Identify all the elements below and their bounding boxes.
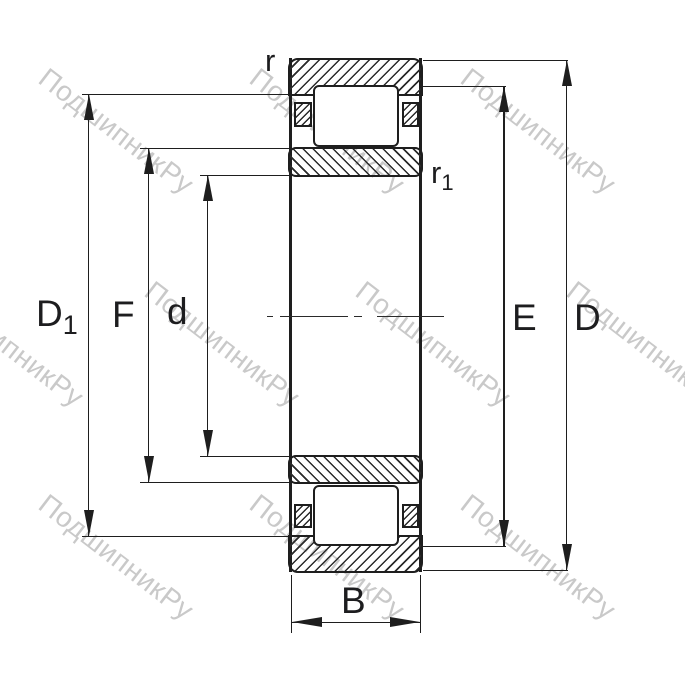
centerline-segment bbox=[354, 316, 362, 317]
label-D1-sub: 1 bbox=[63, 310, 78, 340]
extension-line-D-bottom bbox=[423, 570, 568, 571]
arrowhead-F-up bbox=[144, 148, 154, 174]
centerline-segment bbox=[377, 316, 444, 317]
extension-line-E-bottom bbox=[421, 546, 506, 547]
extension-line-E-top bbox=[421, 86, 506, 87]
label-r1-base: r bbox=[431, 155, 441, 190]
inner-ring-bottom-section bbox=[288, 455, 424, 484]
watermark: ПодшипникРу bbox=[139, 275, 306, 414]
watermark: ПодшипникРу bbox=[33, 62, 200, 201]
label-F-text: F bbox=[112, 294, 135, 335]
dimension-line-F bbox=[148, 148, 150, 482]
watermark: ПодшипникРу bbox=[350, 275, 517, 414]
bearing-drawing-canvas: ПодшипникРу ПодшипникРу ПодшипникРу Подш… bbox=[0, 0, 685, 689]
arrowhead-D1-up bbox=[84, 94, 94, 120]
extension-line-D1-top bbox=[82, 94, 289, 95]
label-B-text: B bbox=[341, 580, 366, 621]
label-r-text: r bbox=[265, 43, 275, 78]
centerline-segment bbox=[280, 316, 348, 317]
label-E: E bbox=[512, 299, 537, 336]
centerline-segment bbox=[267, 316, 273, 317]
label-D1-base: D bbox=[36, 293, 63, 334]
arrowhead-d-up bbox=[203, 175, 213, 201]
arrowhead-E-up bbox=[499, 86, 509, 112]
watermark: ПодшипникРу bbox=[455, 488, 622, 627]
extension-line-D-top bbox=[423, 60, 568, 61]
label-r1: r1 bbox=[431, 157, 454, 194]
extension-line-d-top bbox=[200, 175, 291, 176]
label-d: d bbox=[167, 293, 188, 330]
label-E-text: E bbox=[512, 297, 537, 338]
label-D-text: D bbox=[574, 297, 601, 338]
label-r1-sub: 1 bbox=[441, 170, 453, 195]
roller-top bbox=[313, 85, 399, 148]
watermark: ПодшипникРу bbox=[455, 62, 622, 201]
arrowhead-B-left bbox=[292, 617, 322, 627]
roller-bottom bbox=[313, 485, 399, 547]
extension-line-F-bottom bbox=[140, 482, 289, 483]
arrowhead-D-up bbox=[562, 60, 572, 86]
dimension-line-D1 bbox=[88, 94, 90, 536]
arrowhead-D-down bbox=[562, 544, 572, 570]
extension-line-d-bottom bbox=[200, 456, 291, 457]
label-d-text: d bbox=[167, 291, 188, 332]
cage-bar-top-left bbox=[294, 102, 312, 127]
arrowhead-E-down bbox=[499, 520, 509, 546]
cage-bar-bottom-left bbox=[294, 504, 312, 529]
dimension-line-E bbox=[503, 86, 505, 546]
label-D1: D1 bbox=[36, 295, 78, 339]
label-F: F bbox=[112, 296, 135, 333]
cage-bar-top-right bbox=[402, 102, 420, 127]
arrowhead-B-right bbox=[390, 617, 420, 627]
watermark: ПодшипникРу bbox=[561, 275, 685, 414]
cage-bar-bottom-right bbox=[402, 504, 420, 529]
inner-ring-top-section bbox=[288, 147, 424, 177]
extension-line-F-top bbox=[140, 148, 289, 149]
label-D: D bbox=[574, 299, 601, 336]
watermark: ПодшипникРу bbox=[33, 488, 200, 627]
extension-line-D1-bottom bbox=[82, 536, 289, 537]
arrowhead-F-down bbox=[144, 456, 154, 482]
dimension-line-D bbox=[566, 60, 568, 570]
arrowhead-D1-down bbox=[84, 510, 94, 536]
arrowhead-d-down bbox=[203, 430, 213, 456]
label-B: B bbox=[341, 582, 366, 619]
label-r: r bbox=[265, 45, 275, 76]
dimension-line-d bbox=[207, 175, 209, 456]
